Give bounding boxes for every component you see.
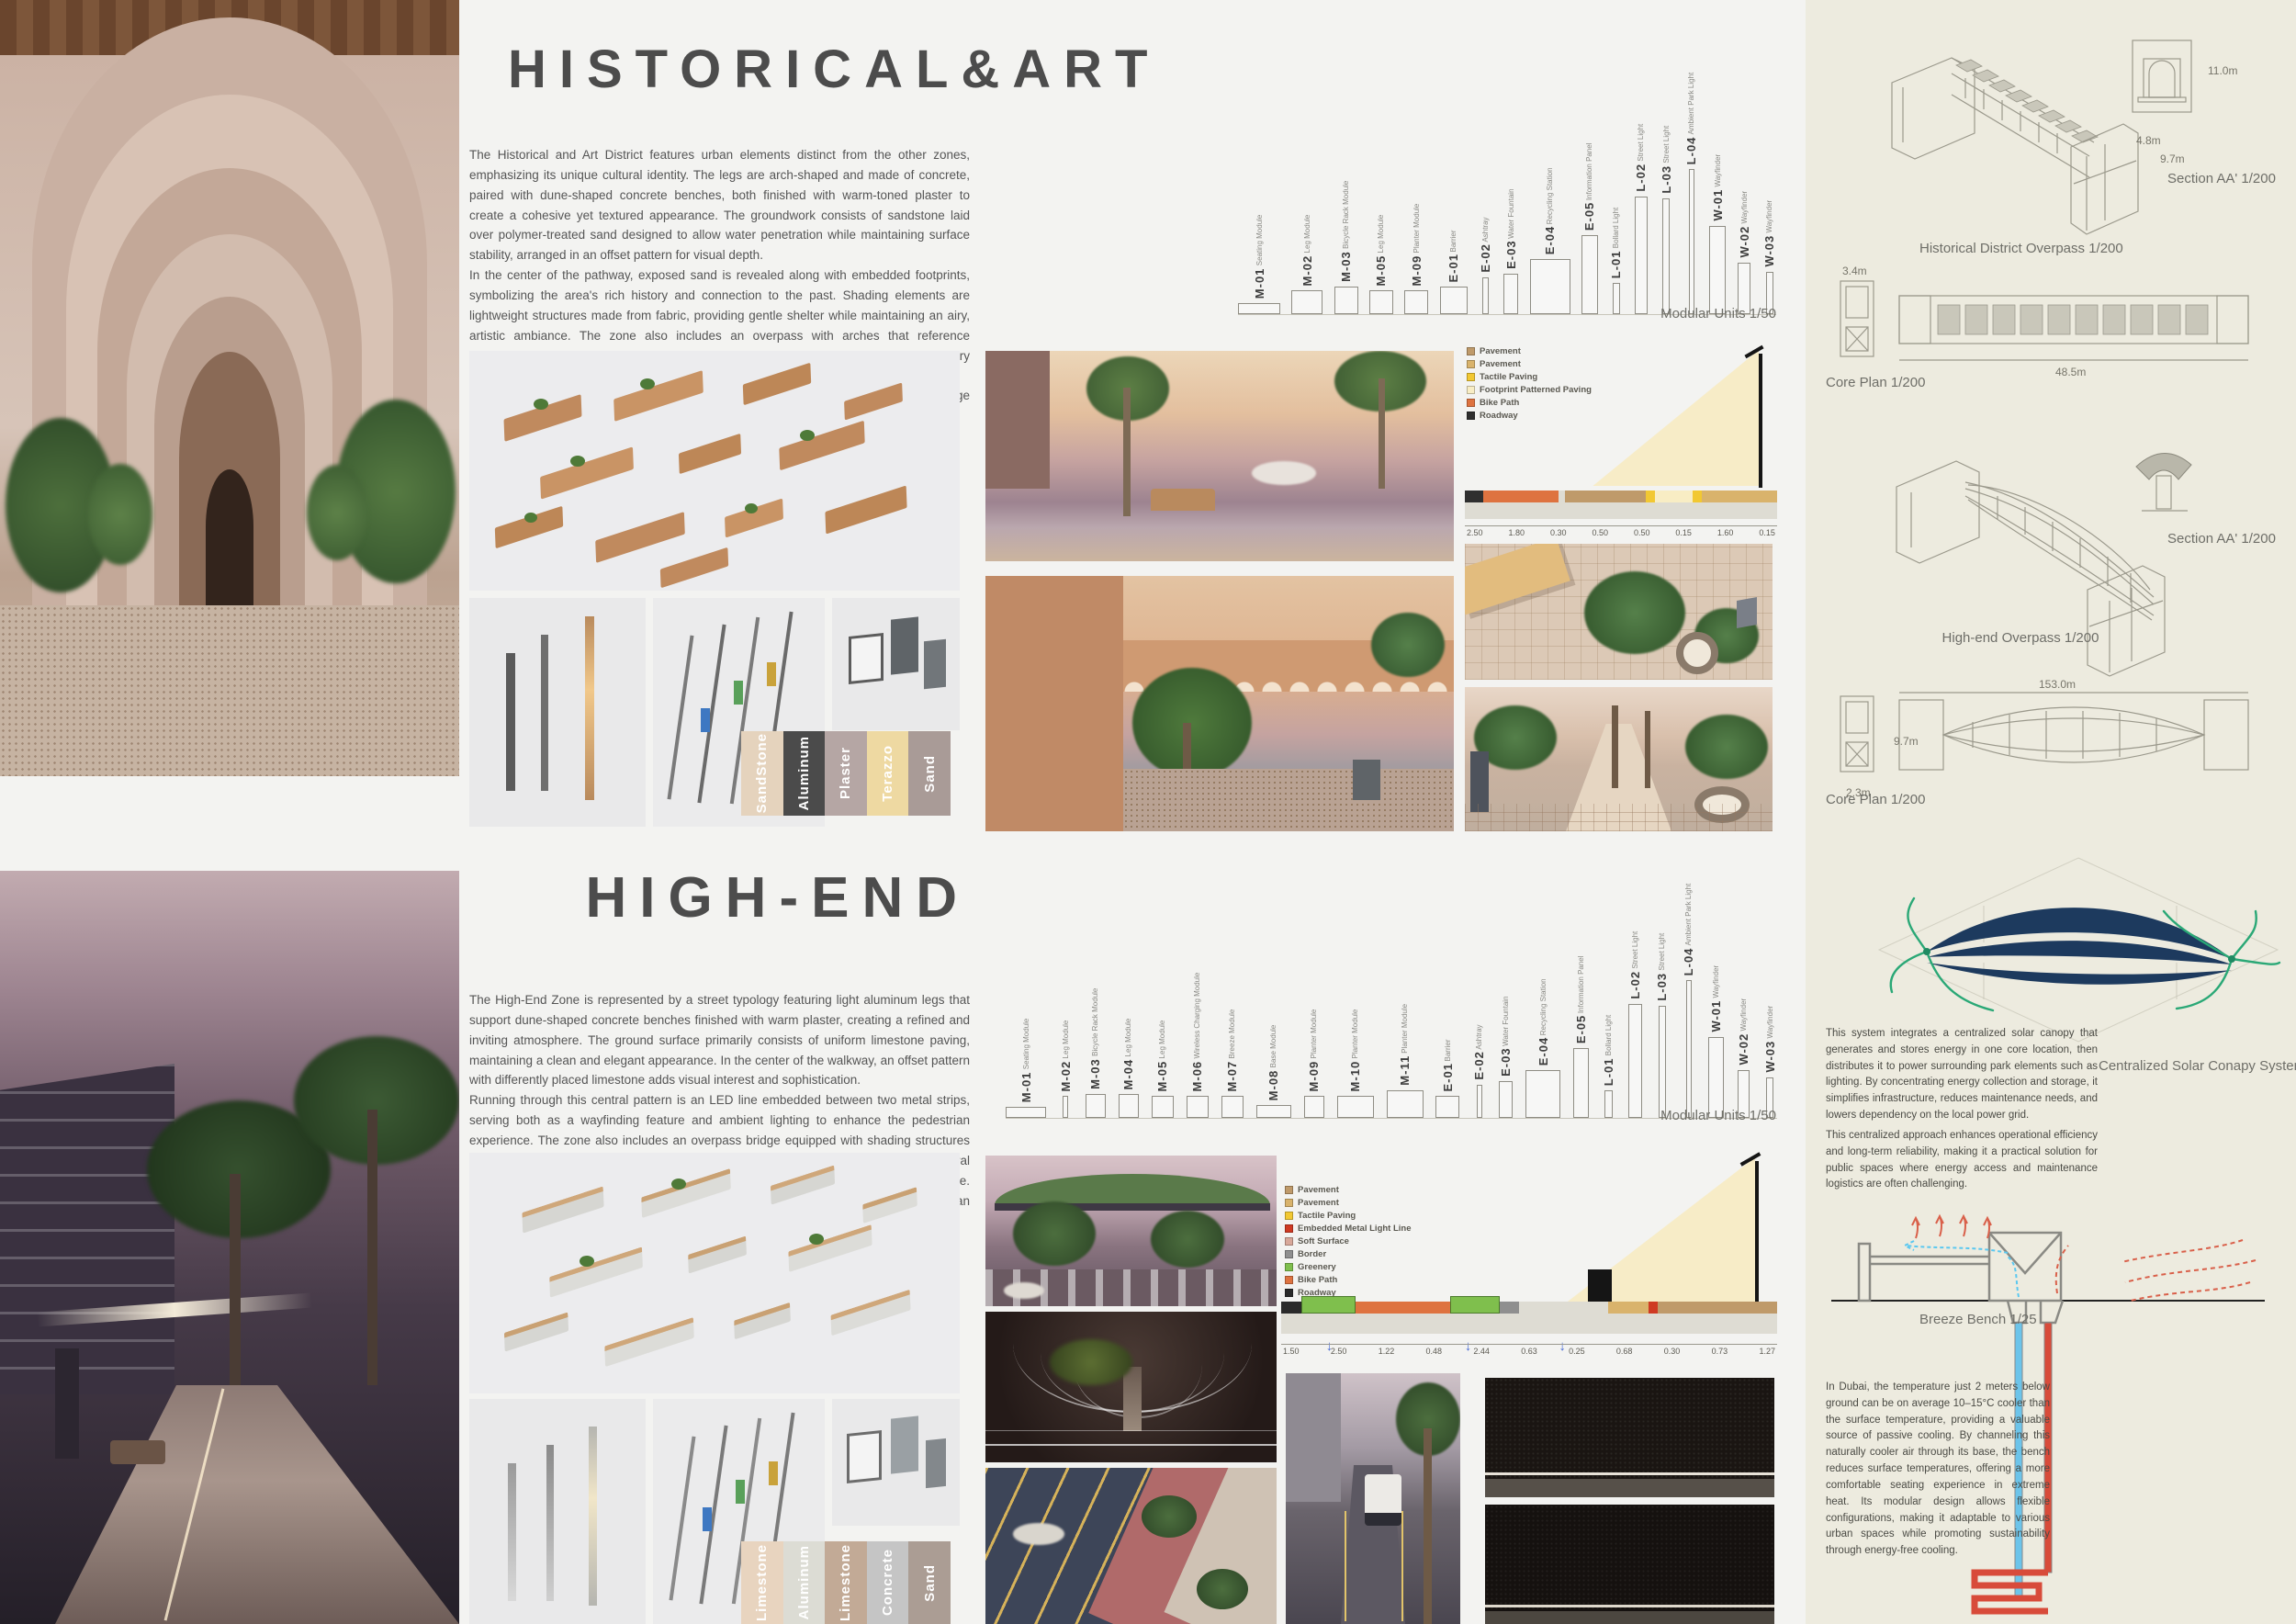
light-cone	[1507, 1157, 1755, 1306]
modular-unit: M-07 Breeze Module	[1221, 1009, 1244, 1118]
detail-dim-arch: 4.8m	[2136, 134, 2161, 147]
hanging-greenery	[1050, 1339, 1132, 1385]
unit-name: Information Panel	[1577, 955, 1585, 1013]
render-bus-street-photo	[1286, 1373, 1460, 1624]
light-line	[1485, 1605, 1774, 1607]
bench-block	[595, 512, 685, 563]
unit-code: L-04	[1684, 136, 1698, 164]
solar-caption: Centralized Solar Conapy System 1/500	[2099, 1058, 2296, 1074]
legend-label: Embedded Metal Light Line	[1298, 1224, 1412, 1234]
unit-elevation-drawing	[1006, 1107, 1046, 1118]
sign-plate	[769, 1461, 778, 1485]
unit-code: M-01	[1253, 267, 1266, 299]
material-label: Sand	[922, 1564, 938, 1602]
unit-elevation-drawing	[1291, 290, 1322, 314]
legend-item: Pavement	[1285, 1185, 1412, 1195]
unit-code: E-02	[1472, 1052, 1486, 1080]
sign-panel	[891, 1415, 918, 1473]
historical-material-swatches: SandStone Aluminum Plaster Terazzo Sand	[741, 731, 951, 816]
unit-code: M-03	[1088, 1058, 1102, 1089]
palm-canopy	[1132, 668, 1252, 778]
unit-name: Ashtray	[1481, 217, 1490, 242]
plan2-length-dim: 153.0m	[2039, 678, 2076, 691]
legend-item: Footprint Patterned Paving	[1467, 385, 1592, 395]
historical-section-dimensions: 2.501.800.300.500.500.151.600.15	[1465, 525, 1777, 539]
detail-dim-width: 9.7m	[2160, 152, 2185, 165]
render-green-overpass-photo	[985, 1156, 1277, 1306]
highend-modules-isometric-image	[469, 1153, 960, 1393]
material-swatch: Limestone	[741, 1541, 783, 1624]
bench-block	[613, 370, 703, 422]
dimension-value: 0.15	[1759, 528, 1775, 539]
modular-unit: W-01 Wayfinder	[1709, 154, 1726, 314]
legend-label: Tactile Paving	[1480, 372, 1537, 382]
material-label: Limestone	[838, 1544, 853, 1621]
legend-label: Soft Surface	[1298, 1236, 1349, 1246]
unit-elevation-drawing	[1525, 1070, 1560, 1118]
unit-name: Bollard Light	[1612, 208, 1620, 248]
render-arch-overpass-photo	[985, 576, 1454, 831]
unit-name: Street Light	[1637, 124, 1645, 162]
modular-unit: E-01 Barrier	[1440, 230, 1468, 314]
legend-item: Tactile Paving	[1285, 1211, 1412, 1221]
unit-name: Water Fountain	[1502, 996, 1510, 1045]
sign-plate	[703, 1507, 712, 1531]
palm-trunk	[1612, 705, 1618, 788]
dimension-value: 0.68	[1616, 1347, 1633, 1358]
material-label: Plaster	[838, 747, 853, 799]
bench-block	[743, 363, 811, 405]
core-plan-caption: Core Plan 1/200	[1826, 375, 1925, 390]
unit-elevation-drawing	[1686, 980, 1692, 1118]
core-dim-width: 3.4m	[1842, 265, 1867, 277]
unit-elevation-drawing	[1187, 1096, 1209, 1118]
unit-code: M-03	[1339, 251, 1353, 282]
plant-tuft	[640, 378, 655, 389]
unit-name: Seating Module	[1255, 215, 1264, 266]
unit-name: Street Light	[1658, 933, 1666, 971]
render-historical-arcade-photo	[0, 0, 459, 776]
car	[1004, 1282, 1044, 1299]
modular-unit: E-05 Information Panel	[1573, 955, 1589, 1118]
unit-name: Breeze Module	[1228, 1009, 1236, 1059]
palm-canopy	[1371, 613, 1445, 677]
palm-canopy	[1584, 571, 1685, 654]
wayfinder-pole	[667, 636, 693, 800]
lamp-post	[508, 1463, 516, 1601]
palm-canopy	[1685, 715, 1768, 779]
unit-name: Leg Module	[1303, 215, 1311, 254]
bridge-rail	[985, 1430, 1277, 1431]
unit-code: M-10	[1348, 1060, 1362, 1091]
legend-color-swatch	[1467, 347, 1475, 355]
unit-code: E-04	[1543, 226, 1557, 254]
palm-trunk	[1379, 378, 1385, 489]
walk-strip	[1519, 1302, 1608, 1314]
historical-modular-caption: Modular Units 1/50	[1561, 306, 1776, 321]
material-swatch: SandStone	[741, 731, 783, 816]
bike-path-strip	[1356, 1302, 1450, 1314]
unit-elevation-drawing	[1503, 274, 1518, 314]
dimension-value: 0.48	[1426, 1347, 1443, 1358]
bench-block	[830, 1290, 910, 1336]
unit-code: M-09	[1307, 1060, 1321, 1091]
plant	[307, 465, 367, 560]
unit-name: Recycling Station	[1546, 167, 1554, 224]
modular-unit: E-04 Recycling Station	[1530, 167, 1570, 314]
unit-elevation-drawing	[1221, 1096, 1244, 1118]
plant-tuft	[570, 456, 585, 467]
modular-unit: L-03 Street Light	[1660, 126, 1673, 314]
unit-name: Bicycle Rack Module	[1342, 181, 1350, 249]
unit-code: M-05	[1155, 1060, 1169, 1091]
modular-unit: M-05 Leg Module	[1369, 215, 1393, 314]
unit-name: Wayfinder	[1714, 154, 1722, 187]
sign-plate	[701, 708, 710, 732]
unit-elevation-drawing	[1435, 1096, 1459, 1118]
legend-label: Pavement	[1298, 1185, 1339, 1195]
unit-code: L-01	[1609, 250, 1623, 278]
material-swatch: Concrete	[867, 1541, 909, 1624]
legend-item: Pavement	[1467, 359, 1592, 369]
unit-name: Wayfinder	[1765, 200, 1773, 233]
modular-unit: L-04 Ambient Park Light	[1684, 73, 1698, 314]
palm-trunk	[367, 1110, 377, 1385]
unit-name: Ambient Park Light	[1687, 73, 1695, 135]
unit-name: Leg Module	[1124, 1019, 1132, 1057]
dubai-cooling-paragraph: In Dubai, the temperature just 2 meters …	[1826, 1380, 2050, 1560]
greenery-strip	[1301, 1296, 1356, 1314]
modular-unit: L-01 Bollard Light	[1609, 208, 1623, 314]
plant	[88, 464, 152, 565]
unit-elevation-drawing	[1689, 169, 1694, 314]
unit-code: W-03	[1763, 1041, 1777, 1073]
unit-name: Wayfinder	[1739, 998, 1748, 1032]
plant-tuft	[580, 1256, 594, 1267]
unit-name: Leg Module	[1377, 215, 1385, 254]
paved-walkway	[1123, 769, 1454, 831]
signage-totem	[55, 1348, 79, 1459]
plant-tuft	[671, 1179, 686, 1190]
dimension-value: 1.80	[1508, 528, 1525, 539]
unit-elevation-drawing	[1499, 1081, 1513, 1118]
lamp-post	[541, 635, 548, 791]
modular-unit: E-02 Ashtray	[1472, 1024, 1486, 1118]
bench-block	[540, 446, 634, 499]
unit-name: Leg Module	[1062, 1021, 1070, 1059]
unit-code: M-05	[1374, 254, 1388, 286]
building-silhouette	[0, 1064, 174, 1394]
legend-label: Roadway	[1480, 411, 1518, 421]
modular-unit: M-02 Leg Module	[1059, 1021, 1073, 1118]
unit-code: E-04	[1536, 1037, 1550, 1066]
legend-color-swatch	[1285, 1289, 1293, 1297]
unit-code: M-02	[1059, 1060, 1073, 1091]
curb-band	[1485, 1611, 1774, 1624]
dimension-value: 2.50	[1467, 528, 1483, 539]
tactile-strip	[1693, 491, 1702, 502]
legend-label: Greenery	[1298, 1262, 1336, 1272]
legend-item: Pavement	[1467, 346, 1592, 356]
bench-block	[660, 547, 728, 589]
dimension-value: 0.30	[1664, 1347, 1681, 1358]
unit-elevation-drawing	[1628, 1004, 1642, 1118]
modular-unit: L-02 Street Light	[1634, 124, 1648, 314]
unit-code: E-05	[1582, 202, 1596, 231]
unit-elevation-drawing	[1482, 277, 1489, 314]
dimension-value: 0.63	[1521, 1347, 1537, 1358]
material-swatch: Sand	[908, 731, 951, 816]
legend-color-swatch	[1285, 1263, 1293, 1271]
sign-panel	[891, 616, 918, 674]
modular-unit: M-02 Leg Module	[1291, 215, 1322, 314]
bench-block	[862, 1187, 917, 1224]
modular-unit: L-01 Bollard Light	[1602, 1015, 1615, 1118]
unit-name: Barrier	[1444, 1039, 1452, 1061]
greenery-strip	[1450, 1296, 1500, 1314]
historical-section-detail-drawing	[2125, 37, 2199, 129]
legend-color-swatch	[1467, 386, 1475, 394]
modular-unit: E-02 Ashtray	[1479, 217, 1492, 314]
dimension-value: 1.22	[1379, 1347, 1395, 1358]
unit-elevation-drawing	[1581, 235, 1598, 314]
plant-tuft	[800, 430, 815, 441]
unit-code: E-01	[1441, 1063, 1455, 1091]
highend-lighting-tile	[469, 1399, 646, 1624]
legend-item: Bike Path	[1467, 398, 1592, 408]
material-label: SandStone	[754, 733, 770, 813]
modular-unit: W-02 Wayfinder	[1737, 998, 1750, 1118]
led-line-strip	[1649, 1302, 1659, 1314]
litter-bin	[1737, 597, 1757, 628]
render-palm-street-photo	[985, 351, 1454, 561]
highend-title: HIGH-END	[469, 865, 970, 930]
historical-title: HISTORICAL&ART	[508, 39, 1160, 100]
unit-elevation-drawing	[1387, 1090, 1424, 1118]
unit-code: M-06	[1190, 1060, 1204, 1091]
modular-unit: L-04 Ambient Park Light	[1682, 884, 1695, 1118]
dimension-value: 0.15	[1675, 528, 1692, 539]
material-swatch: Aluminum	[783, 731, 826, 816]
bench-block	[549, 1246, 643, 1297]
street-light-pole	[1759, 354, 1762, 488]
unit-elevation-drawing	[1662, 198, 1670, 314]
solar-canopy-diagram	[1874, 854, 2283, 1047]
render-courtyard-aerial-photo	[1465, 544, 1773, 680]
legend-label: Footprint Patterned Paving	[1480, 385, 1592, 395]
curb-strip	[1559, 491, 1565, 502]
highend-street-section: Pavement Pavement Tactile Paving Embedde…	[1281, 1150, 1777, 1358]
legend-label: Pavement	[1480, 346, 1521, 356]
unit-elevation-drawing	[1334, 287, 1358, 314]
modular-unit: M-09 Planter Module	[1304, 1009, 1324, 1118]
historical-modular-units: M-01 Seating Module M-02 Leg Module M-03…	[1238, 69, 1776, 315]
highend-modular-caption: Modular Units 1/50	[1561, 1108, 1776, 1123]
modular-unit: L-02 Street Light	[1628, 931, 1642, 1118]
unit-code: M-08	[1266, 1069, 1280, 1100]
light-cone	[1566, 350, 1759, 486]
unit-name: Base Module	[1269, 1025, 1277, 1068]
legend-color-swatch	[1285, 1250, 1293, 1258]
pavement-strip	[1608, 1302, 1648, 1314]
modular-unit: M-09 Planter Module	[1404, 204, 1428, 314]
car	[1252, 461, 1316, 485]
material-label: Limestone	[754, 1544, 770, 1621]
building-silhouette	[1286, 1373, 1341, 1502]
historical-lighting-tile	[469, 598, 646, 827]
modular-unit: E-05 Information Panel	[1581, 142, 1598, 314]
legend-color-swatch	[1285, 1186, 1293, 1194]
material-label: Aluminum	[796, 736, 812, 810]
road-texture-night-photo	[1485, 1378, 1774, 1497]
unit-elevation-drawing	[1708, 1037, 1724, 1118]
legend-label: Bike Path	[1480, 398, 1519, 408]
unit-elevation-drawing	[1063, 1096, 1068, 1118]
unit-code: L-01	[1602, 1057, 1615, 1086]
dimension-value: 2.44	[1473, 1347, 1490, 1358]
breeze-bench-caption: Breeze Bench 1/25	[1919, 1312, 2037, 1327]
lane-line	[1401, 1511, 1403, 1621]
bench-block	[522, 1186, 603, 1233]
dimension-value: 1.60	[1717, 528, 1734, 539]
tree-column	[1123, 1367, 1142, 1431]
historical-section-legend: Pavement Pavement Tactile Paving Footpri…	[1467, 346, 1592, 421]
unit-name: Planter Module	[1351, 1009, 1359, 1059]
arcade-door	[206, 469, 253, 605]
dimension-value: 2.50	[1331, 1347, 1347, 1358]
legend-color-swatch	[1285, 1276, 1293, 1284]
plant-tuft	[809, 1234, 824, 1245]
material-label: Sand	[922, 755, 938, 793]
modular-unit: M-01 Seating Module	[1006, 1019, 1046, 1118]
unit-elevation-drawing	[1119, 1094, 1139, 1118]
legend-label: Pavement	[1480, 359, 1521, 369]
unit-elevation-drawing	[1709, 226, 1726, 314]
bench-block	[844, 382, 903, 420]
modular-unit: M-06 Wireless Charging Module	[1187, 973, 1209, 1118]
unit-name: Wireless Charging Module	[1193, 973, 1201, 1059]
pavement-strip	[1658, 1302, 1777, 1314]
arch-bench	[1151, 489, 1215, 511]
unit-elevation-drawing	[1477, 1085, 1482, 1118]
bench-block	[688, 1235, 747, 1273]
unit-code: M-01	[1019, 1071, 1033, 1102]
modular-unit: M-03 Bicycle Rack Module	[1086, 988, 1106, 1118]
modular-unit: M-11 Planter Module	[1387, 1004, 1424, 1118]
bench-block	[504, 1312, 568, 1351]
unit-code: W-02	[1737, 1033, 1750, 1066]
palm-canopy	[1142, 1495, 1197, 1538]
material-label: Concrete	[880, 1549, 895, 1616]
section-surface-strips	[1281, 1302, 1777, 1314]
section-aa2-caption: Section AA' 1/200	[2167, 531, 2276, 547]
render-pathway-photo	[1465, 687, 1773, 831]
unit-code: E-03	[1499, 1048, 1513, 1077]
legend-color-swatch	[1285, 1199, 1293, 1207]
wayfinder-pole	[669, 1437, 695, 1601]
unit-code: M-07	[1225, 1060, 1239, 1091]
unit-elevation-drawing	[1369, 290, 1393, 314]
bench-block	[771, 1165, 835, 1204]
unit-name: Wayfinder	[1740, 191, 1749, 224]
section-aa-caption: Section AA' 1/200	[2167, 171, 2276, 186]
highend-material-swatches: Limestone Aluminum Limestone Concrete Sa…	[741, 1541, 951, 1624]
bus	[1365, 1474, 1401, 1526]
palm-canopy	[1013, 1201, 1096, 1266]
render-led-tree-photo	[985, 1312, 1277, 1462]
presentation-board: HISTORICAL&ART The Historical and Art Di…	[0, 0, 2296, 1624]
unit-name: Ashtray	[1475, 1024, 1483, 1049]
unit-code: W-02	[1738, 226, 1751, 258]
dimension-value: 1.27	[1759, 1347, 1775, 1358]
modular-unit: M-05 Leg Module	[1152, 1021, 1174, 1118]
unit-code: E-05	[1574, 1015, 1588, 1043]
dimension-value: 0.50	[1634, 528, 1650, 539]
litter-bin	[924, 639, 946, 690]
modular-unit: M-08 Base Module	[1256, 1025, 1291, 1118]
modular-unit: M-03 Bicycle Rack Module	[1334, 181, 1358, 314]
light-line	[1485, 1472, 1774, 1475]
bench-block	[734, 1303, 791, 1340]
historical-overpass-caption: Historical District Overpass 1/200	[1919, 241, 2122, 256]
unit-elevation-drawing	[1635, 197, 1648, 314]
circle-paving-motif	[1676, 632, 1718, 674]
historical-street-section: Pavement Pavement Tactile Paving Footpri…	[1465, 344, 1777, 539]
legend-item: Roadway	[1467, 411, 1592, 421]
modular-unit: E-01 Barrier	[1435, 1039, 1459, 1118]
historical-overpass-axon-drawing	[1864, 32, 2140, 243]
detail-dim-height: 11.0m	[2208, 64, 2237, 77]
vegetated-canopy	[995, 1174, 1270, 1205]
unit-code: W-03	[1762, 235, 1776, 267]
unit-name: Street Light	[1662, 126, 1671, 164]
highend-signage-tile	[832, 1399, 960, 1526]
unit-name: Planter Module	[1401, 1004, 1409, 1054]
light-column	[589, 1427, 597, 1606]
bench-block	[825, 485, 906, 534]
road-texture-night-photo-2	[1485, 1505, 1774, 1624]
legend-color-swatch	[1285, 1212, 1293, 1220]
unit-name: Recycling Station	[1539, 978, 1548, 1035]
legend-color-swatch	[1467, 373, 1475, 381]
lamp-post	[546, 1445, 554, 1601]
roadway-strip	[1281, 1302, 1301, 1314]
historical-signage-tile	[832, 598, 960, 730]
paving-grid	[1465, 804, 1773, 831]
legend-item: Embedded Metal Light Line	[1285, 1224, 1412, 1234]
legend-item: Greenery	[1285, 1262, 1412, 1272]
unit-code: M-11	[1398, 1055, 1412, 1086]
legend-item: Pavement	[1285, 1198, 1412, 1208]
material-swatch: Aluminum	[783, 1541, 826, 1624]
modular-unit: M-10 Planter Module	[1337, 1009, 1374, 1118]
unit-code: E-03	[1504, 241, 1518, 269]
section-figure	[1588, 1269, 1612, 1306]
dimension-value: 0.50	[1592, 528, 1608, 539]
modular-unit: E-04 Recycling Station	[1525, 978, 1560, 1118]
footprint-paving-strip	[1655, 491, 1693, 502]
highend-section-detail-drawing	[2131, 439, 2197, 524]
palm-canopy	[1151, 1211, 1224, 1268]
modular-unit: W-03 Wayfinder	[1763, 1006, 1777, 1118]
plant-tuft	[534, 399, 548, 410]
unit-name: Seating Module	[1022, 1019, 1030, 1070]
tactile-strip	[1646, 491, 1655, 502]
unit-name: Bollard Light	[1604, 1015, 1613, 1055]
unit-name: Street Light	[1631, 931, 1639, 969]
curb-band	[1485, 1479, 1774, 1497]
unit-code: M-09	[1410, 254, 1424, 286]
